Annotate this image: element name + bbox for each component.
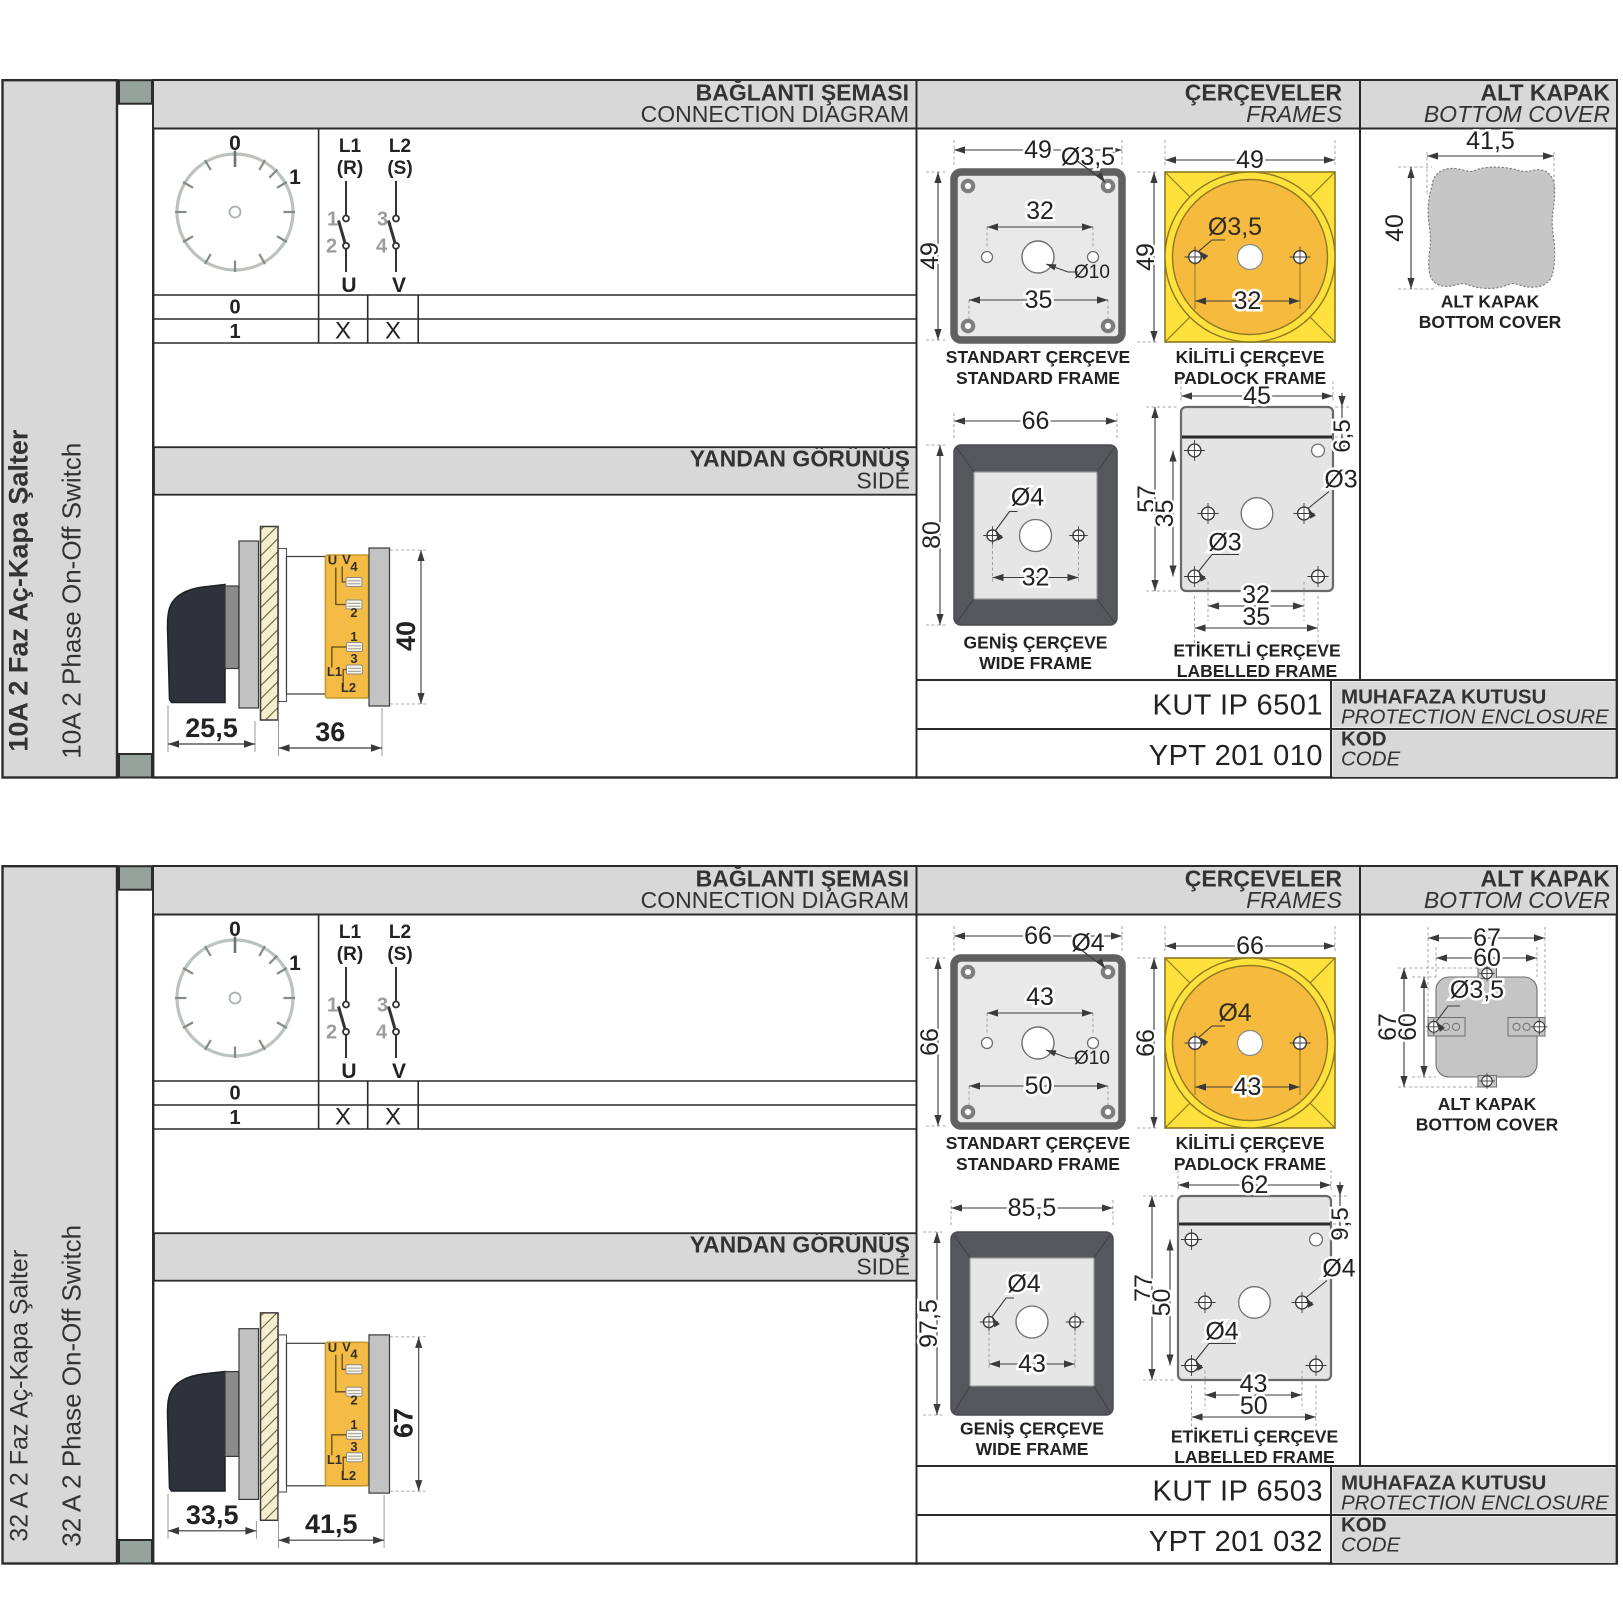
svg-text:(R): (R) (337, 944, 363, 965)
svg-text:50: 50 (1025, 1072, 1053, 1100)
svg-text:FRAMES: FRAMES (1246, 101, 1343, 127)
svg-text:X: X (385, 1104, 401, 1131)
svg-text:35: 35 (1242, 603, 1270, 631)
svg-text:35: 35 (1025, 286, 1053, 314)
svg-text:Ø3,5: Ø3,5 (1208, 213, 1262, 241)
svg-text:66: 66 (1132, 1029, 1160, 1057)
svg-text:Ø3: Ø3 (1324, 466, 1357, 494)
svg-text:32: 32 (1026, 197, 1054, 225)
svg-text:GENİŞ ÇERÇEVE: GENİŞ ÇERÇEVE (964, 633, 1108, 653)
svg-text:40: 40 (1381, 214, 1409, 242)
svg-text:WIDE FRAME: WIDE FRAME (979, 653, 1092, 673)
svg-text:U: U (328, 1340, 337, 1355)
svg-text:1: 1 (350, 1417, 357, 1432)
svg-text:2: 2 (350, 1392, 357, 1407)
svg-text:1: 1 (289, 952, 301, 975)
svg-text:FRAMES: FRAMES (1246, 887, 1343, 913)
svg-text:KİLİTLİ ÇERÇEVE: KİLİTLİ ÇERÇEVE (1176, 347, 1325, 367)
svg-text:4: 4 (376, 1022, 388, 1044)
svg-text:GENİŞ ÇERÇEVE: GENİŞ ÇERÇEVE (960, 1419, 1104, 1439)
svg-text:Ø4: Ø4 (1205, 1318, 1238, 1346)
svg-text:2: 2 (326, 1022, 337, 1044)
svg-text:Ø3,5: Ø3,5 (1061, 143, 1115, 171)
svg-text:V: V (392, 274, 406, 297)
svg-text:49: 49 (916, 242, 944, 270)
svg-text:L1: L1 (339, 922, 362, 943)
svg-text:43: 43 (1026, 983, 1054, 1011)
svg-text:Ø4: Ø4 (1011, 484, 1044, 512)
svg-text:Ø3,5: Ø3,5 (1450, 976, 1504, 1004)
svg-text:CODE: CODE (1341, 1534, 1401, 1557)
svg-text:L1: L1 (339, 136, 362, 157)
svg-text:X: X (385, 318, 401, 345)
svg-text:32: 32 (1234, 287, 1262, 315)
svg-text:BOTTOM COVER: BOTTOM COVER (1419, 312, 1562, 332)
svg-text:0: 0 (229, 297, 240, 319)
svg-text:3: 3 (350, 651, 357, 666)
svg-text:45: 45 (1243, 382, 1271, 410)
svg-text:36: 36 (315, 717, 345, 747)
svg-text:U: U (341, 274, 356, 297)
svg-text:35: 35 (1151, 500, 1179, 528)
svg-text:41,5: 41,5 (305, 1509, 358, 1539)
svg-text:BOTTOM COVER: BOTTOM COVER (1416, 1115, 1559, 1135)
svg-text:Ø4: Ø4 (1071, 929, 1104, 957)
svg-text:(S): (S) (387, 944, 412, 965)
svg-text:X: X (335, 318, 351, 345)
svg-text:49: 49 (1132, 243, 1160, 271)
svg-text:L1: L1 (327, 1452, 342, 1467)
svg-text:KUT IP 6501: KUT IP 6501 (1153, 690, 1323, 722)
svg-text:YPT 201 032: YPT 201 032 (1149, 1526, 1323, 1558)
svg-text:3: 3 (377, 995, 388, 1017)
svg-text:L2: L2 (389, 922, 411, 943)
svg-text:STANDARD FRAME: STANDARD FRAME (956, 1154, 1120, 1174)
svg-text:2: 2 (326, 236, 337, 258)
svg-text:3: 3 (350, 1439, 357, 1454)
svg-text:ETİKETLİ ÇERÇEVE: ETİKETLİ ÇERÇEVE (1171, 1427, 1338, 1447)
svg-text:PROTECTION ENCLOSURE: PROTECTION ENCLOSURE (1341, 1492, 1609, 1515)
svg-text:STANDART ÇERÇEVE: STANDART ÇERÇEVE (946, 347, 1130, 367)
svg-text:CONNECTION DIAGRAM: CONNECTION DIAGRAM (641, 887, 909, 913)
svg-text:43: 43 (1018, 1350, 1046, 1378)
svg-text:49: 49 (1236, 146, 1264, 174)
svg-text:Ø10: Ø10 (1074, 262, 1110, 283)
svg-text:49: 49 (1024, 136, 1052, 164)
svg-text:V: V (392, 1060, 406, 1083)
svg-text:LABELLED FRAME: LABELLED FRAME (1174, 1447, 1334, 1467)
svg-text:SIDE: SIDE (856, 468, 910, 494)
svg-text:L2: L2 (341, 1468, 356, 1483)
svg-text:0: 0 (229, 1083, 240, 1105)
svg-text:3: 3 (377, 209, 388, 231)
svg-text:1: 1 (229, 321, 240, 343)
svg-text:ALT KAPAK: ALT KAPAK (1441, 292, 1540, 312)
svg-text:1: 1 (289, 166, 301, 189)
svg-text:CONNECTION DIAGRAM: CONNECTION DIAGRAM (641, 101, 909, 127)
svg-text:32 A 2 Phase On-Off Switch: 32 A 2 Phase On-Off Switch (57, 1225, 87, 1547)
svg-text:0: 0 (229, 918, 241, 941)
svg-text:L1: L1 (327, 664, 342, 679)
svg-text:STANDART ÇERÇEVE: STANDART ÇERÇEVE (946, 1133, 1130, 1153)
svg-text:Ø3: Ø3 (1208, 529, 1241, 557)
svg-text:62: 62 (1241, 1171, 1269, 1199)
svg-text:YPT 201 010: YPT 201 010 (1149, 740, 1323, 772)
svg-text:33,5: 33,5 (186, 1500, 239, 1530)
svg-text:LABELLED FRAME: LABELLED FRAME (1177, 661, 1337, 681)
svg-text:SIDE: SIDE (856, 1254, 910, 1280)
svg-text:4: 4 (350, 1346, 358, 1361)
svg-text:ALT KAPAK: ALT KAPAK (1438, 1094, 1537, 1114)
svg-text:60: 60 (1394, 1013, 1422, 1041)
svg-text:10A 2 Phase On-Off Switch: 10A 2 Phase On-Off Switch (57, 443, 87, 759)
svg-text:CODE: CODE (1341, 748, 1401, 771)
svg-text:66: 66 (1024, 922, 1052, 950)
svg-text:66: 66 (1022, 407, 1050, 435)
svg-text:4: 4 (350, 559, 358, 574)
svg-text:Ø4: Ø4 (1007, 1270, 1040, 1298)
svg-text:25,5: 25,5 (185, 713, 238, 743)
svg-text:1: 1 (327, 209, 338, 231)
svg-text:97,5: 97,5 (915, 1299, 943, 1348)
svg-text:L2: L2 (389, 136, 411, 157)
svg-text:32 A 2 Faz Aç-Kapa Şalter: 32 A 2 Faz Aç-Kapa Şalter (6, 1250, 34, 1542)
svg-text:1: 1 (229, 1107, 240, 1129)
svg-text:41,5: 41,5 (1466, 127, 1515, 155)
svg-text:1: 1 (350, 629, 357, 644)
svg-text:(R): (R) (337, 158, 363, 179)
svg-text:Ø4: Ø4 (1218, 999, 1251, 1027)
svg-text:2: 2 (350, 605, 357, 620)
svg-text:U: U (341, 1060, 356, 1083)
svg-text:32: 32 (1022, 564, 1050, 592)
svg-text:9,5: 9,5 (1327, 1207, 1354, 1240)
svg-text:X: X (335, 1104, 351, 1131)
svg-text:4: 4 (376, 236, 388, 258)
svg-text:0: 0 (229, 132, 241, 155)
svg-text:66: 66 (916, 1028, 944, 1056)
svg-text:Ø4: Ø4 (1322, 1255, 1355, 1283)
svg-text:50: 50 (1240, 1392, 1268, 1420)
svg-text:KUT IP 6503: KUT IP 6503 (1153, 1476, 1323, 1508)
svg-text:U: U (328, 553, 337, 568)
svg-text:6,5: 6,5 (1329, 419, 1356, 452)
svg-text:PROTECTION ENCLOSURE: PROTECTION ENCLOSURE (1341, 706, 1609, 729)
svg-text:Ø10: Ø10 (1074, 1048, 1110, 1069)
svg-text:80: 80 (918, 521, 946, 549)
svg-text:BOTTOM COVER: BOTTOM COVER (1424, 101, 1610, 127)
svg-text:50: 50 (1148, 1289, 1176, 1317)
svg-text:L2: L2 (341, 680, 356, 695)
svg-text:43: 43 (1234, 1073, 1262, 1101)
svg-text:KİLİTLİ ÇERÇEVE: KİLİTLİ ÇERÇEVE (1176, 1133, 1325, 1153)
svg-text:1: 1 (327, 995, 338, 1017)
svg-text:85,5: 85,5 (1008, 1194, 1057, 1222)
svg-text:66: 66 (1236, 932, 1264, 960)
svg-text:BOTTOM COVER: BOTTOM COVER (1424, 887, 1610, 913)
svg-text:40: 40 (391, 621, 421, 651)
svg-text:STANDARD FRAME: STANDARD FRAME (956, 368, 1120, 388)
svg-text:WIDE FRAME: WIDE FRAME (976, 1439, 1089, 1459)
svg-text:(S): (S) (387, 158, 412, 179)
svg-text:ETİKETLİ ÇERÇEVE: ETİKETLİ ÇERÇEVE (1173, 641, 1340, 661)
svg-text:10A 2 Faz Aç-Kapa Şalter: 10A 2 Faz Aç-Kapa Şalter (4, 429, 34, 752)
svg-text:67: 67 (389, 1408, 419, 1438)
